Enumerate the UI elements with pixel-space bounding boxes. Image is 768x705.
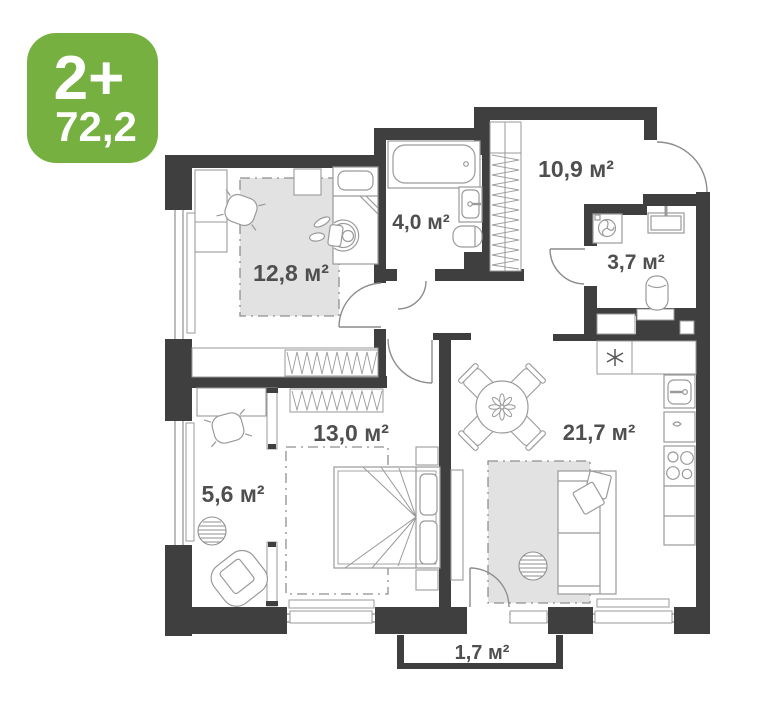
svg-text:13,0 м²: 13,0 м² — [313, 420, 389, 446]
svg-text:1,7 м²: 1,7 м² — [455, 642, 510, 664]
svg-text:5,6 м²: 5,6 м² — [201, 481, 264, 507]
svg-text:10,9 м²: 10,9 м² — [538, 156, 614, 182]
svg-text:72,2: 72,2 — [55, 103, 137, 150]
svg-text:3,7 м²: 3,7 м² — [607, 251, 665, 274]
svg-text:4,0 м²: 4,0 м² — [392, 211, 450, 234]
svg-text:21,7 м²: 21,7 м² — [563, 420, 636, 445]
svg-text:12,8 м²: 12,8 м² — [253, 260, 329, 286]
